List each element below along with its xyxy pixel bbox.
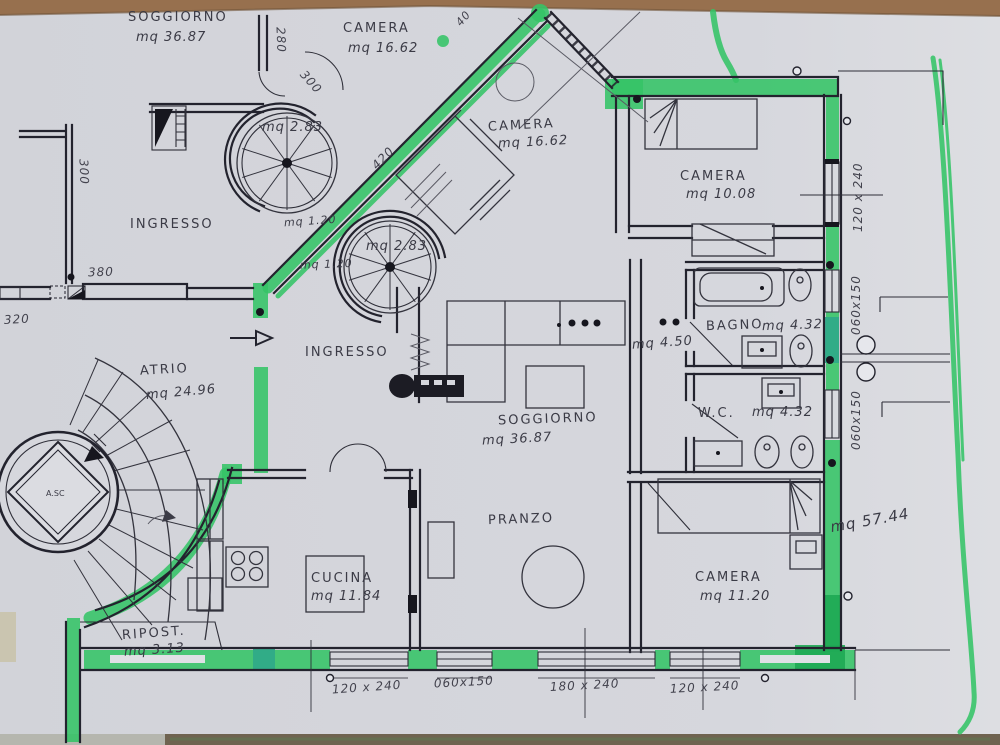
room-label-soggiorno-top: SOGGIORNO <box>128 10 228 25</box>
area-label-soggiorno-top: mq 36.87 <box>136 30 206 45</box>
tape-piece <box>0 612 16 662</box>
dim-window-right-2: 060x150 <box>849 275 863 335</box>
floorplan-photo: SOGGIORNO mq 36.87 CAMERA mq 16.62 280 3… <box>0 0 1000 745</box>
column-marker <box>793 67 801 75</box>
room-label-camera-right: CAMERA <box>680 169 747 184</box>
room-label-bagno: BAGNO <box>706 317 764 334</box>
fireplace <box>389 374 415 398</box>
area-label-spiral-1: mq 2.83 <box>262 120 323 135</box>
dim-320: 320 <box>4 312 31 327</box>
dim-window-right-1: 120 x 240 <box>851 162 865 232</box>
label-elevator: A.SC <box>46 489 65 498</box>
area-label-bagno: mq 4.32 <box>762 317 823 334</box>
room-label-wc: W.C. <box>698 406 735 421</box>
area-label-vano-b: mq 1.20 <box>300 257 353 272</box>
room-label-camera-top: CAMERA <box>343 21 410 36</box>
room-label-ingresso-left: INGRESSO <box>130 217 214 232</box>
dim-300-wall: 300 <box>77 159 92 185</box>
room-label-camera-bottom: CAMERA <box>695 570 762 585</box>
area-label-cucina: mq 11.84 <box>311 589 381 604</box>
dim-window-right-3: 060x150 <box>849 390 863 450</box>
area-label-camera-right: mq 10.08 <box>686 187 756 202</box>
room-label-ingresso-center: INGRESSO <box>305 345 389 360</box>
room-label-cucina: CUCINA <box>311 571 373 586</box>
area-label-camera-bottom: mq 11.20 <box>700 589 770 604</box>
dim-280: 280 <box>274 27 289 53</box>
area-label-camera-top: mq 16.62 <box>348 41 418 56</box>
dim-380: 380 <box>88 265 114 280</box>
area-label-spiral-2: mq 2.83 <box>366 239 427 254</box>
room-label-pranzo: PRANZO <box>488 511 555 528</box>
room-label-atrio: ATRIO <box>140 361 190 379</box>
area-label-wc: mq 4.32 <box>752 405 813 420</box>
